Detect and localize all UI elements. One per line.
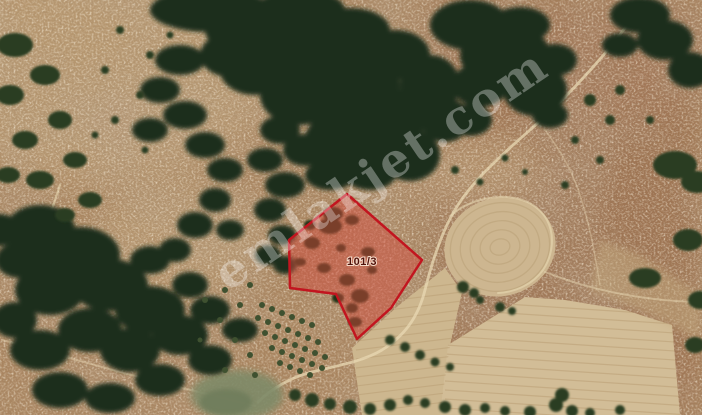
satellite-image: 101/3 emlakjet.com [0,0,702,415]
parcel-label: 101/3 [347,256,377,268]
satellite-map: 101/3 emlakjet.com [0,0,702,415]
